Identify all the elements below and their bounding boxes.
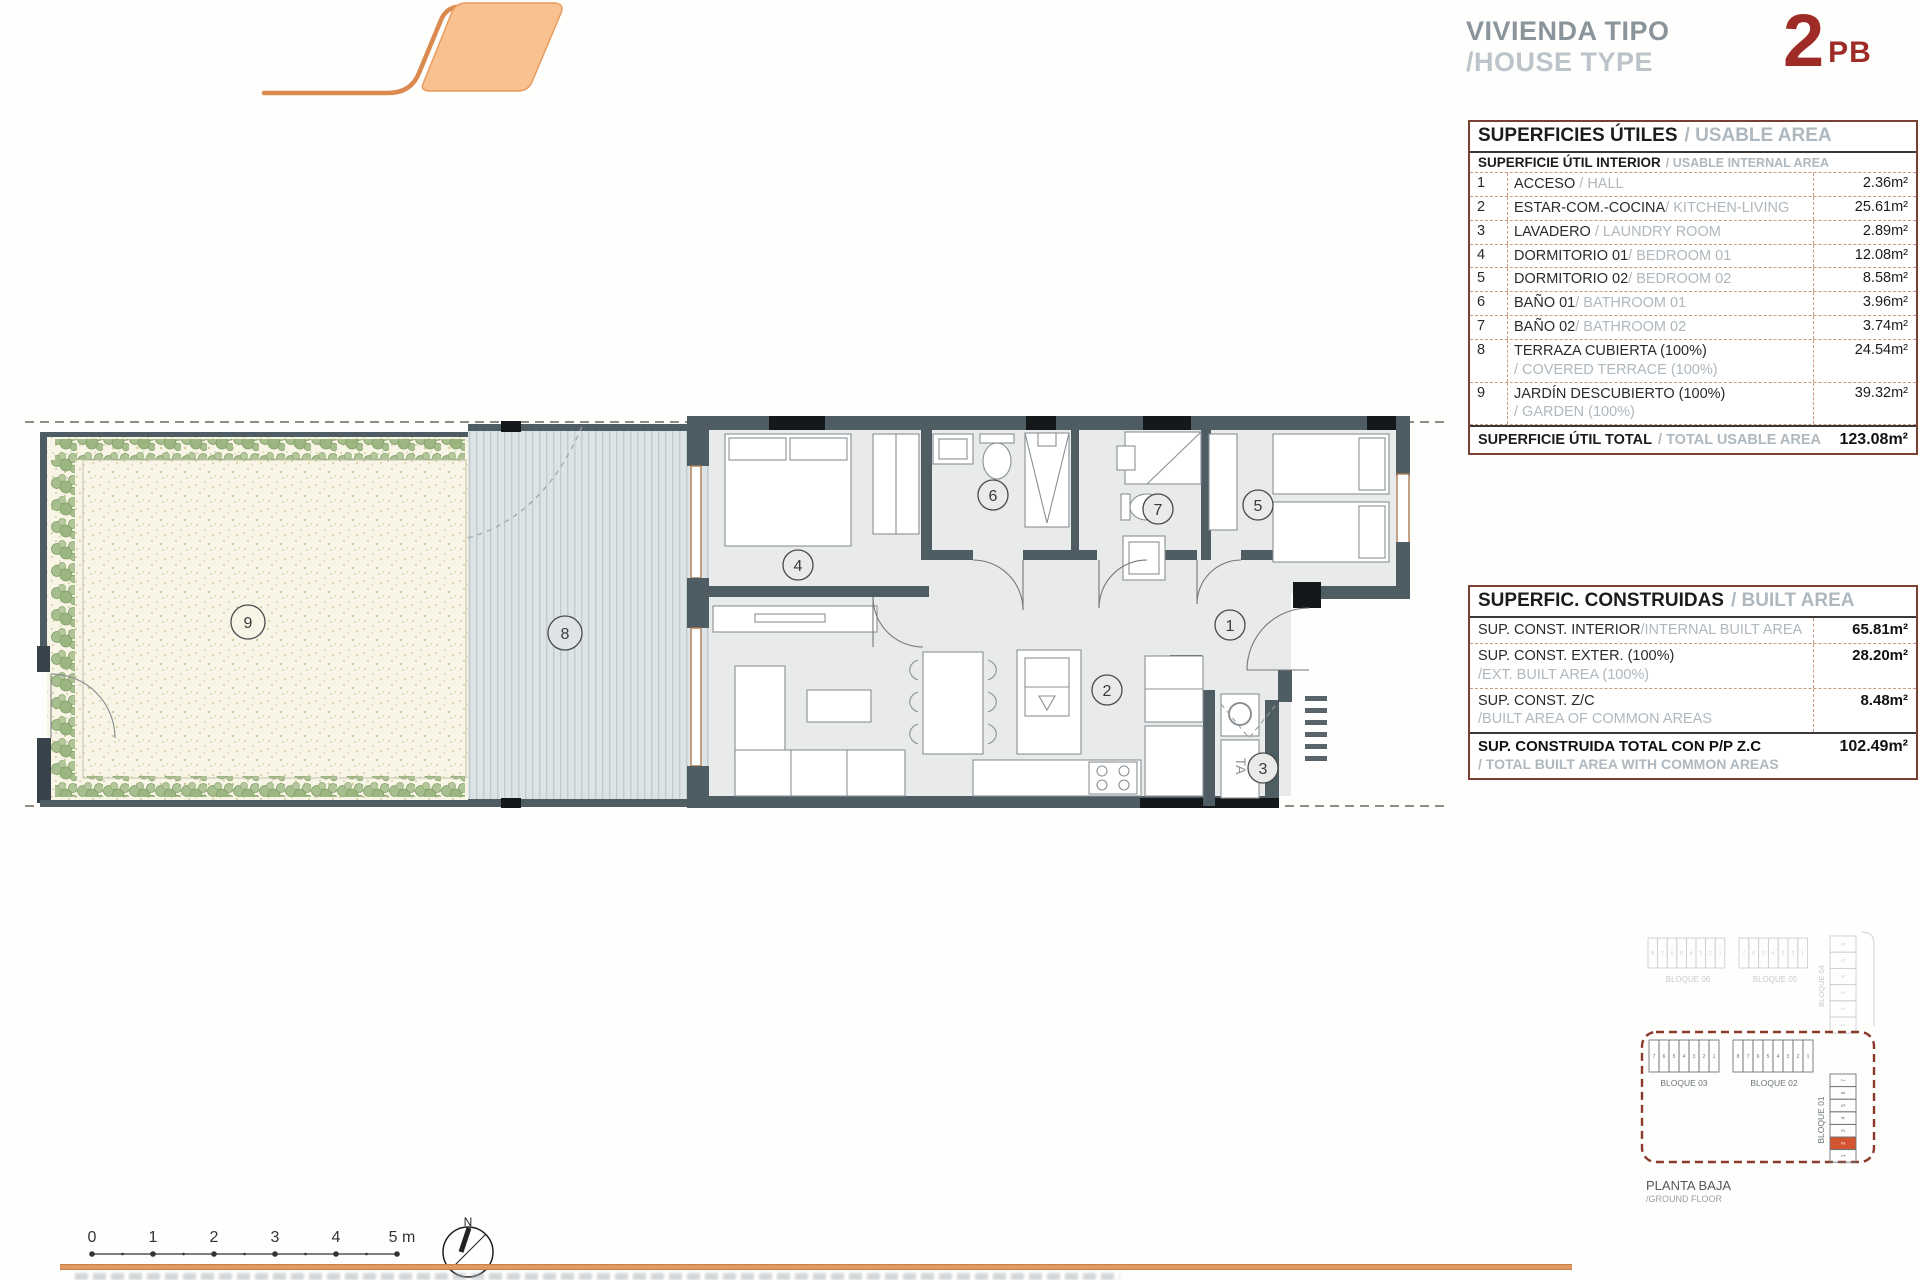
room-label-garden: 9 [231,605,265,639]
footer-rule [60,1264,1572,1270]
svg-text:6: 6 [989,488,998,505]
keyplan-unit-number: 5 [1841,959,1847,962]
usable-area-table: SUPERFICIES ÚTILES / USABLE AREA SUPERFI… [1468,120,1918,455]
keyplan-unit-number: 2 [1797,1054,1800,1060]
keyplan-unit-number: 7 [1661,951,1664,957]
table-row: 3 LAVADERO / LAUNDRY ROOM 2.89m² [1470,221,1916,245]
bloque05-label: BLOQUE 05 [1753,975,1798,984]
room-label-bedroom02: 5 [1243,490,1273,520]
usable-header-en: / USABLE AREA [1685,125,1832,147]
built-area-table: SUPERFIC. CONSTRUIDAS / BUILT AREA SUP. … [1468,585,1918,780]
table-row: 6 BAÑO 01/ BATHROOM 01 3.96m² [1470,292,1916,316]
north-label: N [464,1215,473,1229]
keyplan-unit-number: 3 [1787,1054,1790,1060]
house-type-title: VIVIENDA TIPO /HOUSE TYPE [1466,16,1670,78]
floor-plan: TA 9 8 4 6 7 5 [25,408,1450,830]
keyplan-bloque06: 87654321 [1648,938,1725,968]
keyplan-unit-number: 1 [1807,1054,1810,1060]
svg-text:4: 4 [794,558,803,575]
svg-text:2: 2 [1103,683,1112,700]
brand-logo [248,0,578,108]
keyplan-unit-number: 6 [1841,1091,1847,1094]
table-row: 1 ACCESO / HALL 2.36m² [1470,173,1916,197]
title-en: /HOUSE TYPE [1466,47,1670,78]
keyplan-unit-number: 7 [1747,1054,1750,1060]
table-row: SUP. CONST. EXTER. (100%)/EXT. BUILT ARE… [1470,644,1916,689]
house-type-badge: 2 PB [1783,6,1872,76]
keyplan-unit-number: 5 [1767,1054,1770,1060]
bloque06-label: BLOQUE 06 [1666,975,1711,984]
keyplan-unit-number: 4 [1690,951,1693,957]
keyplan-unit-number: 2 [1703,1054,1706,1060]
keyplan-bloque05: 7654321 [1739,938,1808,968]
keyplan-unit-number: 2 [1792,951,1795,957]
table-row: SUP. CONST. Z/C/BUILT AREA OF COMMON ARE… [1470,689,1916,733]
keyplan-unit-number: 4 [1841,1116,1847,1119]
site-outline [1862,932,1874,1026]
floor-label-en: /GROUND FLOOR [1646,1194,1723,1204]
table-row: SUP. CONST. INTERIOR/INTERNAL BUILT AREA… [1470,618,1916,644]
terrace-area [468,421,711,808]
room-label-terrace: 8 [548,616,582,650]
scale-tick: 3 [271,1229,280,1246]
keyplan-bloque01: 7654321 [1830,1074,1856,1162]
table-row: 5 DORMITORIO 02/ BEDROOM 02 8.58m² [1470,268,1916,292]
table-row: 9 JARDÍN DESCUBIERTO (100%)/ GARDEN (100… [1470,383,1916,426]
bedroom01-furniture [725,434,919,546]
keyplan-unit-number: 6 [1663,1054,1666,1060]
keyplan-unit-number: 1 [1841,1023,1847,1026]
scale-tick: 0 [88,1229,97,1246]
room-label-laundry: 3 [1248,753,1278,783]
window [691,466,701,578]
floor-label: PLANTA BAJA [1646,1178,1731,1193]
title-es: VIVIENDA TIPO [1466,16,1670,47]
keyplan-unit-number: 3 [1699,951,1702,957]
plan-sheet: VIVIENDA TIPO /HOUSE TYPE 2 PB SUPERFICI… [0,0,1920,1280]
svg-text:9: 9 [244,615,253,632]
usable-total-row: SUPERFICIE ÚTIL TOTAL / TOTAL USABLE ARE… [1470,425,1916,453]
stairs [1305,696,1327,761]
table-row: 2 ESTAR-COM.-COCINA/ KITCHEN-LIVING 25.6… [1470,197,1916,221]
keyplan-unit-number: 5 [1762,951,1765,957]
table-row: 8 TERRAZA CUBIERTA (100%)/ COVERED TERRA… [1470,340,1916,383]
scale-tick: 5 m [389,1229,416,1246]
keyplan-unit-number: 3 [1693,1054,1696,1060]
keyplan-unit-number: 1 [1841,1154,1847,1157]
keyplan-unit-number: 7 [1743,951,1746,957]
table-row: 4 DORMITORIO 01/ BEDROOM 01 12.08m² [1470,245,1916,269]
keyplan-unit-number: 4 [1777,1054,1780,1060]
keyplan-unit-number: 1 [1801,951,1804,957]
keyplan-unit-number: 8 [1737,1054,1740,1060]
scale-tick: 2 [210,1229,219,1246]
keyplan-unit-number: 3 [1841,1129,1847,1132]
keyplan-unit-number: 7 [1653,1054,1656,1060]
room-label-bedroom01: 4 [783,550,813,580]
keyplan-unit-number: 6 [1841,942,1847,945]
scale-tick: 1 [149,1229,158,1246]
bloque02-label: BLOQUE 02 [1750,1078,1798,1088]
keyplan-unit-number: 2 [1841,1142,1847,1145]
keyplan-bloque04: 654321 [1830,936,1856,1033]
keyplan-unit-number: 7 [1841,1079,1847,1082]
keyplan-unit-number: 1 [1719,951,1722,957]
keyplan-unit-number: 4 [1772,951,1775,957]
room-label-hall: 1 [1215,610,1245,640]
keyplan-bloque02: 87654321 [1733,1040,1813,1072]
type-number: 2 [1783,6,1824,76]
bloque03-label: BLOQUE 03 [1660,1078,1708,1088]
scale-tick: 4 [332,1229,341,1246]
keyplan-unit-number: 6 [1752,951,1755,957]
keyplan-unit-number: 4 [1683,1054,1686,1060]
keyplan-unit-number: 2 [1709,951,1712,957]
room-label-bath01: 6 [978,480,1008,510]
apartment: TA [687,416,1410,808]
keyplan-unit-number: 6 [1757,1054,1760,1060]
keyplan-bloque03: 7654321 [1649,1040,1719,1072]
window [691,628,701,766]
footer-disclaimer-blur [75,1273,1120,1280]
bloque04-label: BLOQUE 04 [1817,965,1826,1007]
keyplan-unit-number: 5 [1680,951,1683,957]
room-label-bath02: 7 [1143,494,1173,524]
window [1397,474,1409,544]
keyplan-unit-number: 3 [1841,991,1847,994]
built-total-row: SUP. CONSTRUIDA TOTAL CON P/P Z.C 102.49… [1470,732,1916,778]
keyplan-unit-number: 1 [1713,1054,1716,1060]
keyplan-unit-number: 4 [1841,975,1847,978]
bloque01-label: BLOQUE 01 [1816,1096,1826,1144]
keyplan-unit-number: 8 [1651,951,1654,957]
usable-header-es: SUPERFICIES ÚTILES [1478,125,1678,147]
built-table-header: SUPERFIC. CONSTRUIDAS / BUILT AREA [1470,587,1916,618]
svg-text:8: 8 [561,626,570,643]
svg-text:3: 3 [1259,761,1268,778]
room-label-kitchen: 2 [1092,675,1122,705]
keyplan-unit-number: 5 [1841,1104,1847,1107]
site-key-plan: 87654321 7654321 654321 BLOQUE 06 BLOQUE… [1638,928,1920,1218]
svg-text:5: 5 [1254,498,1263,515]
svg-text:7: 7 [1154,502,1163,519]
usable-table-subheader: SUPERFICIE ÚTIL INTERIOR / USABLE INTERN… [1470,153,1916,173]
keyplan-unit-number: 6 [1671,951,1674,957]
svg-text:1: 1 [1226,618,1235,635]
keyplan-unit-number: 2 [1841,1007,1847,1010]
type-suffix: PB [1828,36,1872,70]
keyplan-unit-number: 5 [1673,1054,1676,1060]
table-row: 7 BAÑO 02/ BATHROOM 02 3.74m² [1470,316,1916,340]
washer-ta-label: TA [1233,758,1249,776]
keyplan-unit-number: 3 [1782,951,1785,957]
usable-table-header: SUPERFICIES ÚTILES / USABLE AREA [1470,122,1916,153]
